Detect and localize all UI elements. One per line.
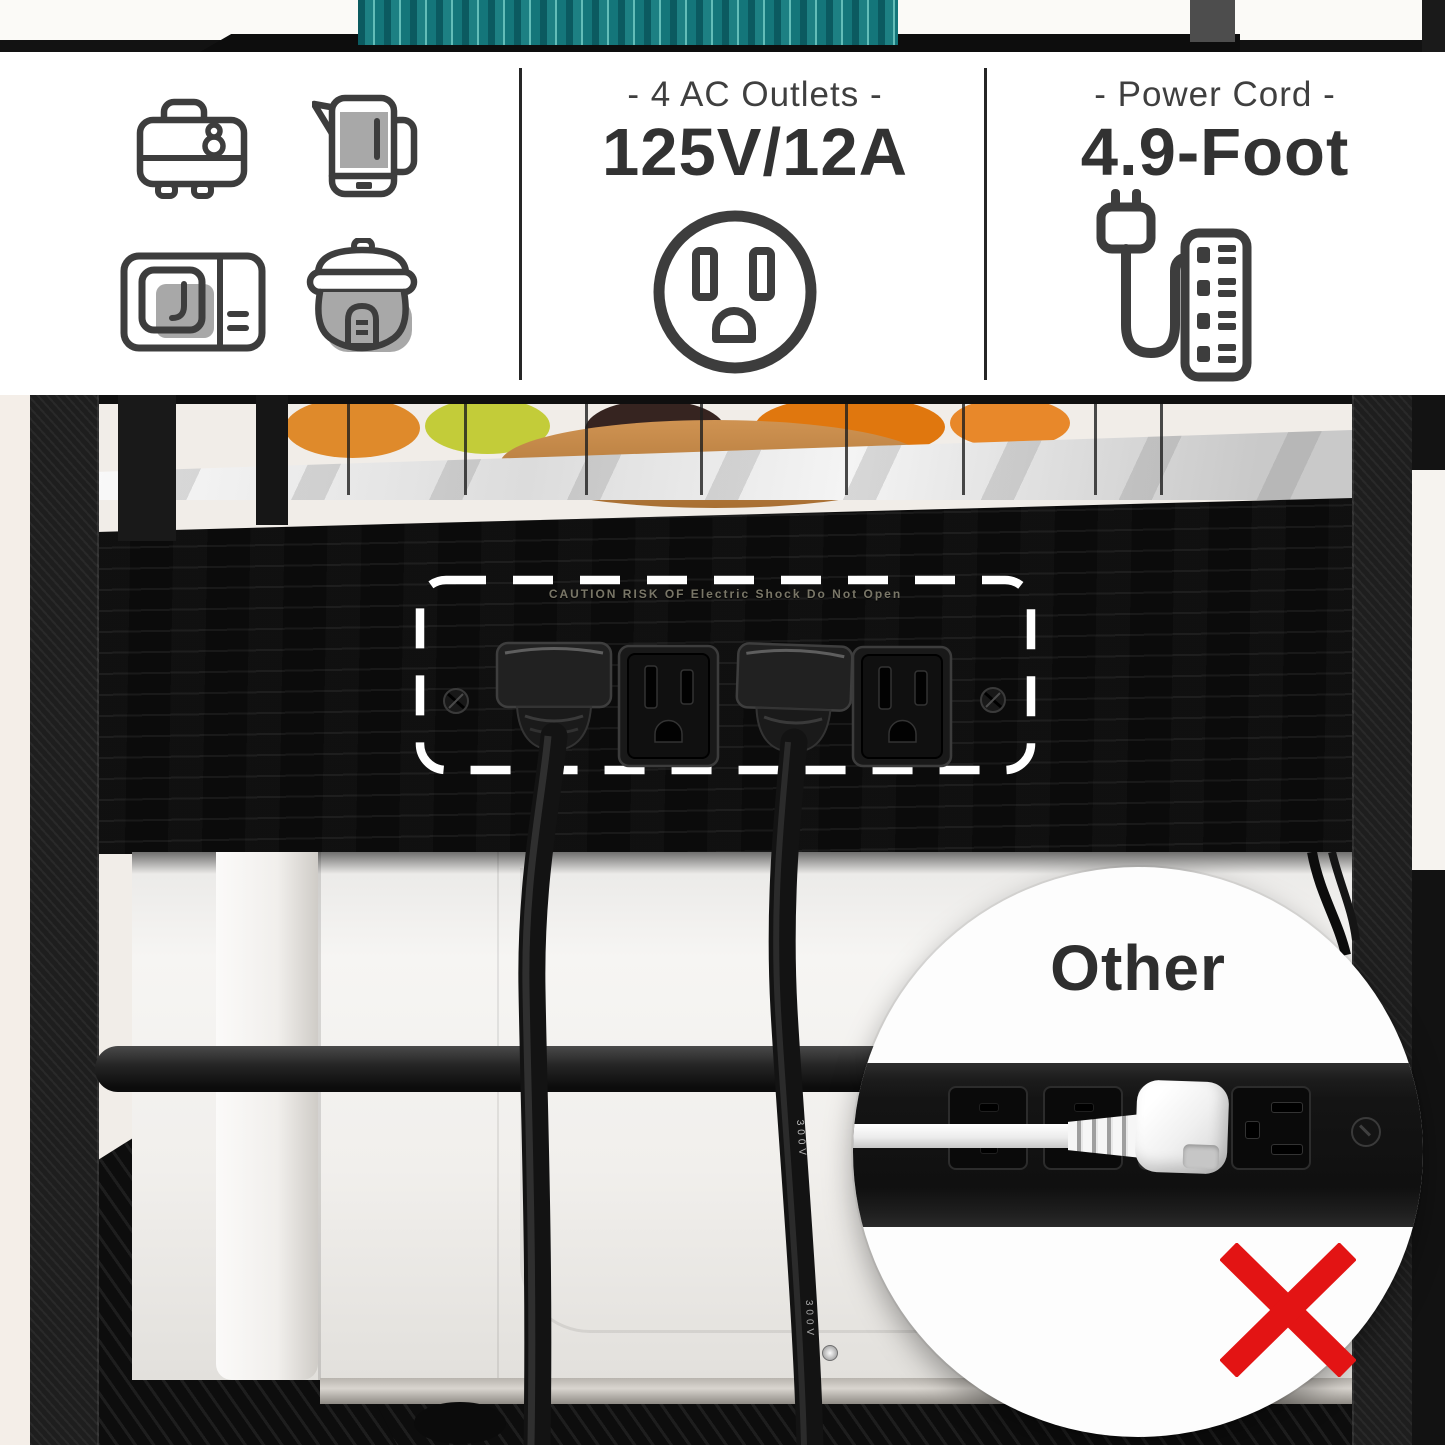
cord-label: - Power Cord - xyxy=(985,75,1445,115)
upper-shelf-edge xyxy=(30,395,1445,404)
ac-outlet-icon xyxy=(650,207,820,377)
basket-wire xyxy=(700,398,703,495)
plug-power-strip-icon xyxy=(1085,185,1260,385)
top-photo-strip xyxy=(0,0,1445,52)
plug-notch xyxy=(1183,1144,1220,1169)
microwave-screw xyxy=(822,1345,838,1361)
frame-post-left xyxy=(30,395,99,1445)
outlets-value: 125V/12A xyxy=(525,114,985,191)
kettle-icon xyxy=(312,88,418,210)
cord-value: 4.9-Foot xyxy=(985,114,1445,191)
frame-bar xyxy=(1190,0,1235,42)
power-strip-panel xyxy=(97,498,1353,854)
basket-wire xyxy=(962,398,965,495)
white-plug xyxy=(1134,1079,1229,1174)
basket-wire xyxy=(585,398,588,495)
microwave-seam xyxy=(318,852,321,1380)
white-cable xyxy=(853,1124,1086,1148)
inset-outlet xyxy=(1231,1086,1311,1170)
corner-post xyxy=(1422,0,1445,52)
basket-wire xyxy=(1094,398,1097,495)
toaster-icon xyxy=(134,94,250,208)
basket-wire xyxy=(845,398,848,495)
red-x-icon xyxy=(1220,1243,1356,1377)
basket-wire xyxy=(1160,398,1163,495)
microwave-seam xyxy=(497,852,499,1380)
strip-screw xyxy=(1351,1117,1381,1147)
microwave-foot xyxy=(414,1402,506,1444)
background-left xyxy=(0,395,31,1445)
frame-upright xyxy=(118,395,176,541)
microwave-left-corner xyxy=(216,852,318,1380)
basket-wire xyxy=(347,398,350,495)
panel-divider-1 xyxy=(519,68,522,380)
teal-vase xyxy=(358,0,898,45)
fruit-orange xyxy=(285,398,420,458)
microwave-icon xyxy=(120,246,266,358)
outlet-caution-text: CAUTION RISK OF Electric Shock Do Not Op… xyxy=(420,587,1031,601)
background-right xyxy=(1410,470,1445,870)
header-band: - 4 AC Outlets - 125V/12A - Power Cord -… xyxy=(0,52,1445,395)
frame-corner xyxy=(1408,395,1445,477)
frame-upright xyxy=(256,395,288,525)
rice-cooker-icon xyxy=(302,238,424,366)
basket-wire xyxy=(464,398,467,495)
inset-title: Other xyxy=(853,931,1423,1005)
product-infographic: - 4 AC Outlets - 125V/12A - Power Cord -… xyxy=(0,0,1445,1445)
outlets-label: - 4 AC Outlets - xyxy=(525,75,985,115)
